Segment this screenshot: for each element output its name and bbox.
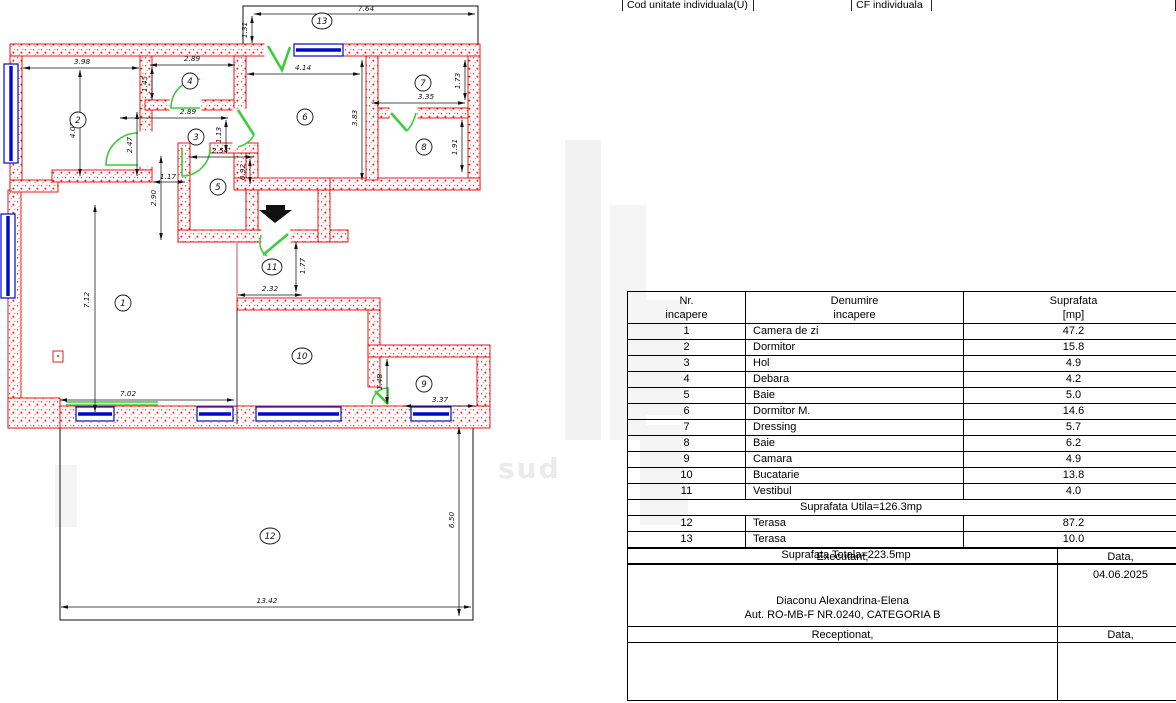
wall-segment [366,56,378,180]
dimension-label: 1.17 [160,172,177,181]
dimension-label: 2.32 [262,284,279,293]
room-name-cell: Hol [746,356,964,372]
dimension-label: 4.14 [295,63,312,72]
dimension-label: 3.98 [74,57,91,66]
rooms-table-body: Nr.incapere Denumireincapere Suprafata[m… [628,292,1176,564]
table-row: 4Debara4.2 [628,372,1176,388]
svg-text:6: 6 [302,113,308,123]
svg-text:12: 12 [265,532,276,542]
room-number-label: 12 [260,528,280,544]
room-name-cell: Terasa [746,532,964,548]
room-name-cell: Baie [746,436,964,452]
room-area-cell: 6.2 [964,436,1176,452]
room-number-label: 6 [297,109,313,125]
room-name-cell: Dressing [746,420,964,436]
dimension-label: 3.37 [432,395,449,404]
wall-segment [10,44,480,56]
room-number-label: 2 [70,112,86,128]
room-name-cell: Camara [746,452,964,468]
room-name-cell: Camera de zi [746,324,964,340]
room-name-cell: Baie [746,388,964,404]
column-dot [57,355,59,357]
strip-cell-empty [932,0,1176,11]
window [4,64,18,163]
room-area-cell: 14.6 [964,404,1176,420]
room-number-label: 7 [415,75,431,91]
executant-name: Diaconu Alexandrina-Elena [776,595,909,607]
table-row: 1Camera de zi47.2 [628,324,1176,340]
dimension-label: 1.13 [214,127,223,144]
strip-cell-cf: CF individuala [852,0,932,11]
room-number-label: 13 [312,13,332,29]
room-number-label: 3 [188,129,204,145]
wall-segment [320,178,480,190]
door-opening [139,132,153,166]
date-value: 04.06.2025 [1058,565,1176,627]
wall-segment [8,398,60,428]
executant-identity: Diaconu Alexandrina-Elena Aut. RO-MB-F N… [628,565,1058,627]
room-nr-cell: 4 [628,372,746,388]
room-area-cell: 4.9 [964,452,1176,468]
room-nr-cell: 2 [628,340,746,356]
room-number-label: 11 [262,259,282,275]
dimension-label: 7.02 [120,389,137,398]
window [294,44,343,56]
signature-block: Executant, Data, Diaconu Alexandrina-Ele… [627,548,1176,703]
room-area-cell: 4.2 [964,372,1176,388]
room-name-cell: Vestibul [746,484,964,500]
dimension-label: 1.48 [375,374,384,391]
receptionat-label: Receptionat, [628,627,1058,643]
room-nr-cell: 7 [628,420,746,436]
dimension-label: 0.92 [238,164,247,181]
cadastral-floor-plan-page: sud [0,0,1176,703]
col-header-denumire: Denumireincapere [746,292,964,324]
wall-segment [318,190,330,242]
table-row: 9Camara4.9 [628,452,1176,468]
room-name-cell: Dormitor M. [746,404,964,420]
dimension-label: 1.45 [140,76,149,93]
strip-cell-empty [753,0,851,11]
col-header-suprafata: Suprafata[mp] [964,292,1176,324]
watermark-text: sud [498,452,561,485]
room-number-label: 5 [210,179,226,195]
svg-text:10: 10 [297,352,308,362]
entrance-arrow-icon [259,205,292,223]
room-name-cell: Debara [746,372,964,388]
watermark-bar [565,140,601,440]
wall-segment [178,230,262,242]
data-label: Data, [1058,549,1176,565]
rooms-table: Nr.incapere Denumireincapere Suprafata[m… [627,291,1176,564]
subtotal-utila: Suprafata Utila=126.3mp [628,500,1176,516]
room-area-cell: 4.9 [964,356,1176,372]
room-number-label: 4 [182,73,198,89]
executant-label: Executant, [628,549,1058,565]
table-row: 3Hol4.9 [628,356,1176,372]
strip-cell-cod-unitate: Cod unitate individuala(U) [623,0,754,11]
window [256,407,341,421]
dimension-label: 2.89 [180,107,197,116]
dimension-label: 1.91 [450,139,459,155]
room-area-cell: 13.8 [964,468,1176,484]
room-nr-cell: 6 [628,404,746,420]
rooms-table-header-row: Nr.incapere Denumireincapere Suprafata[m… [628,292,1176,324]
room-nr-cell: 12 [628,516,746,532]
dimension-label: 2.89 [184,54,201,63]
room-name-cell: Dormitor [746,340,964,356]
dimension-label: 1.31 [240,22,249,38]
window [1,214,15,298]
wall-segment [477,357,490,406]
wall-segment [178,143,190,242]
room-number-label: 9 [416,376,432,392]
wall-segment [10,180,58,192]
svg-text:9: 9 [421,380,426,390]
room-number-label: 1 [115,295,131,311]
room-area-cell: 15.8 [964,340,1176,356]
dimension-label: 3.83 [350,110,359,127]
room-area-cell: 47.2 [964,324,1176,340]
receptionat-empty-cell [628,643,1058,701]
table-row: 5Baie5.0 [628,388,1176,404]
svg-text:2: 2 [75,116,80,126]
dimension-label: 6.50 [447,512,456,529]
subtotal-utila-row: Suprafata Utila=126.3mp [628,500,1176,516]
table-row: 13Terasa10.0 [628,532,1176,548]
svg-text:4: 4 [187,77,192,87]
room-number-label: 10 [292,348,312,364]
window [411,407,451,421]
table-row: 12Terasa87.2 [628,516,1176,532]
room-area-cell: 5.7 [964,420,1176,436]
room-nr-cell: 5 [628,388,746,404]
receptionat-date-empty-cell [1058,643,1176,701]
svg-text:13: 13 [317,17,328,27]
executant-authorization: Aut. RO-MB-F NR.0240, CATEGORIA B [744,609,940,621]
dimension-label: 2.90 [149,190,158,207]
wall-segment [246,190,258,230]
svg-text:3: 3 [193,133,198,143]
table-row: 6Dormitor M.14.6 [628,404,1176,420]
dimension-label: 3.35 [418,92,435,101]
table-row: 2Dormitor15.8 [628,340,1176,356]
svg-text:8: 8 [421,143,427,153]
window [197,407,233,421]
room-name-cell: Bucatarie [746,468,964,484]
terrace-12-outline [60,428,473,620]
dimension-label: 13.42 [257,596,278,605]
dimension-label: 7.64 [358,4,375,13]
wall-segment [237,298,380,310]
table-row: 8Baie6.2 [628,436,1176,452]
room-nr-cell: 1 [628,324,746,340]
header-strip: Cod unitate individuala(U) CF individual… [622,0,1176,11]
svg-text:7: 7 [420,79,426,89]
svg-text:1: 1 [120,299,125,309]
table-row: 11Vestibul4.0 [628,484,1176,500]
dimension-label: 2.47 [125,137,134,154]
room-area-cell: 87.2 [964,516,1176,532]
room-nr-cell: 13 [628,532,746,548]
room-name-cell: Terasa [746,516,964,532]
room-nr-cell: 8 [628,436,746,452]
room-area-cell: 5.0 [964,388,1176,404]
room-nr-cell: 3 [628,356,746,372]
room-nr-cell: 11 [628,484,746,500]
room-area-cell: 4.0 [964,484,1176,500]
wall-segment [468,56,480,190]
room-area-cell: 10.0 [964,532,1176,548]
col-header-nr: Nr.incapere [628,292,746,324]
room-nr-cell: 9 [628,452,746,468]
table-row: 10Bucatarie13.8 [628,468,1176,484]
dimension-label: 1.73 [453,73,462,90]
room-nr-cell: 10 [628,468,746,484]
data-label-2: Data, [1058,627,1176,643]
watermark-blotch [55,465,77,527]
dimension-label: 7.12 [82,292,91,309]
svg-text:5: 5 [215,183,220,193]
wall-segment [234,178,330,190]
room-number-label: 8 [416,139,432,155]
wall-segment [368,345,490,357]
table-row: 7Dressing5.7 [628,420,1176,436]
svg-text:11: 11 [267,263,278,273]
dimension-label: 1.77 [298,258,307,275]
wall-segment [374,108,468,118]
dimension-label: 2.54 [212,146,229,155]
